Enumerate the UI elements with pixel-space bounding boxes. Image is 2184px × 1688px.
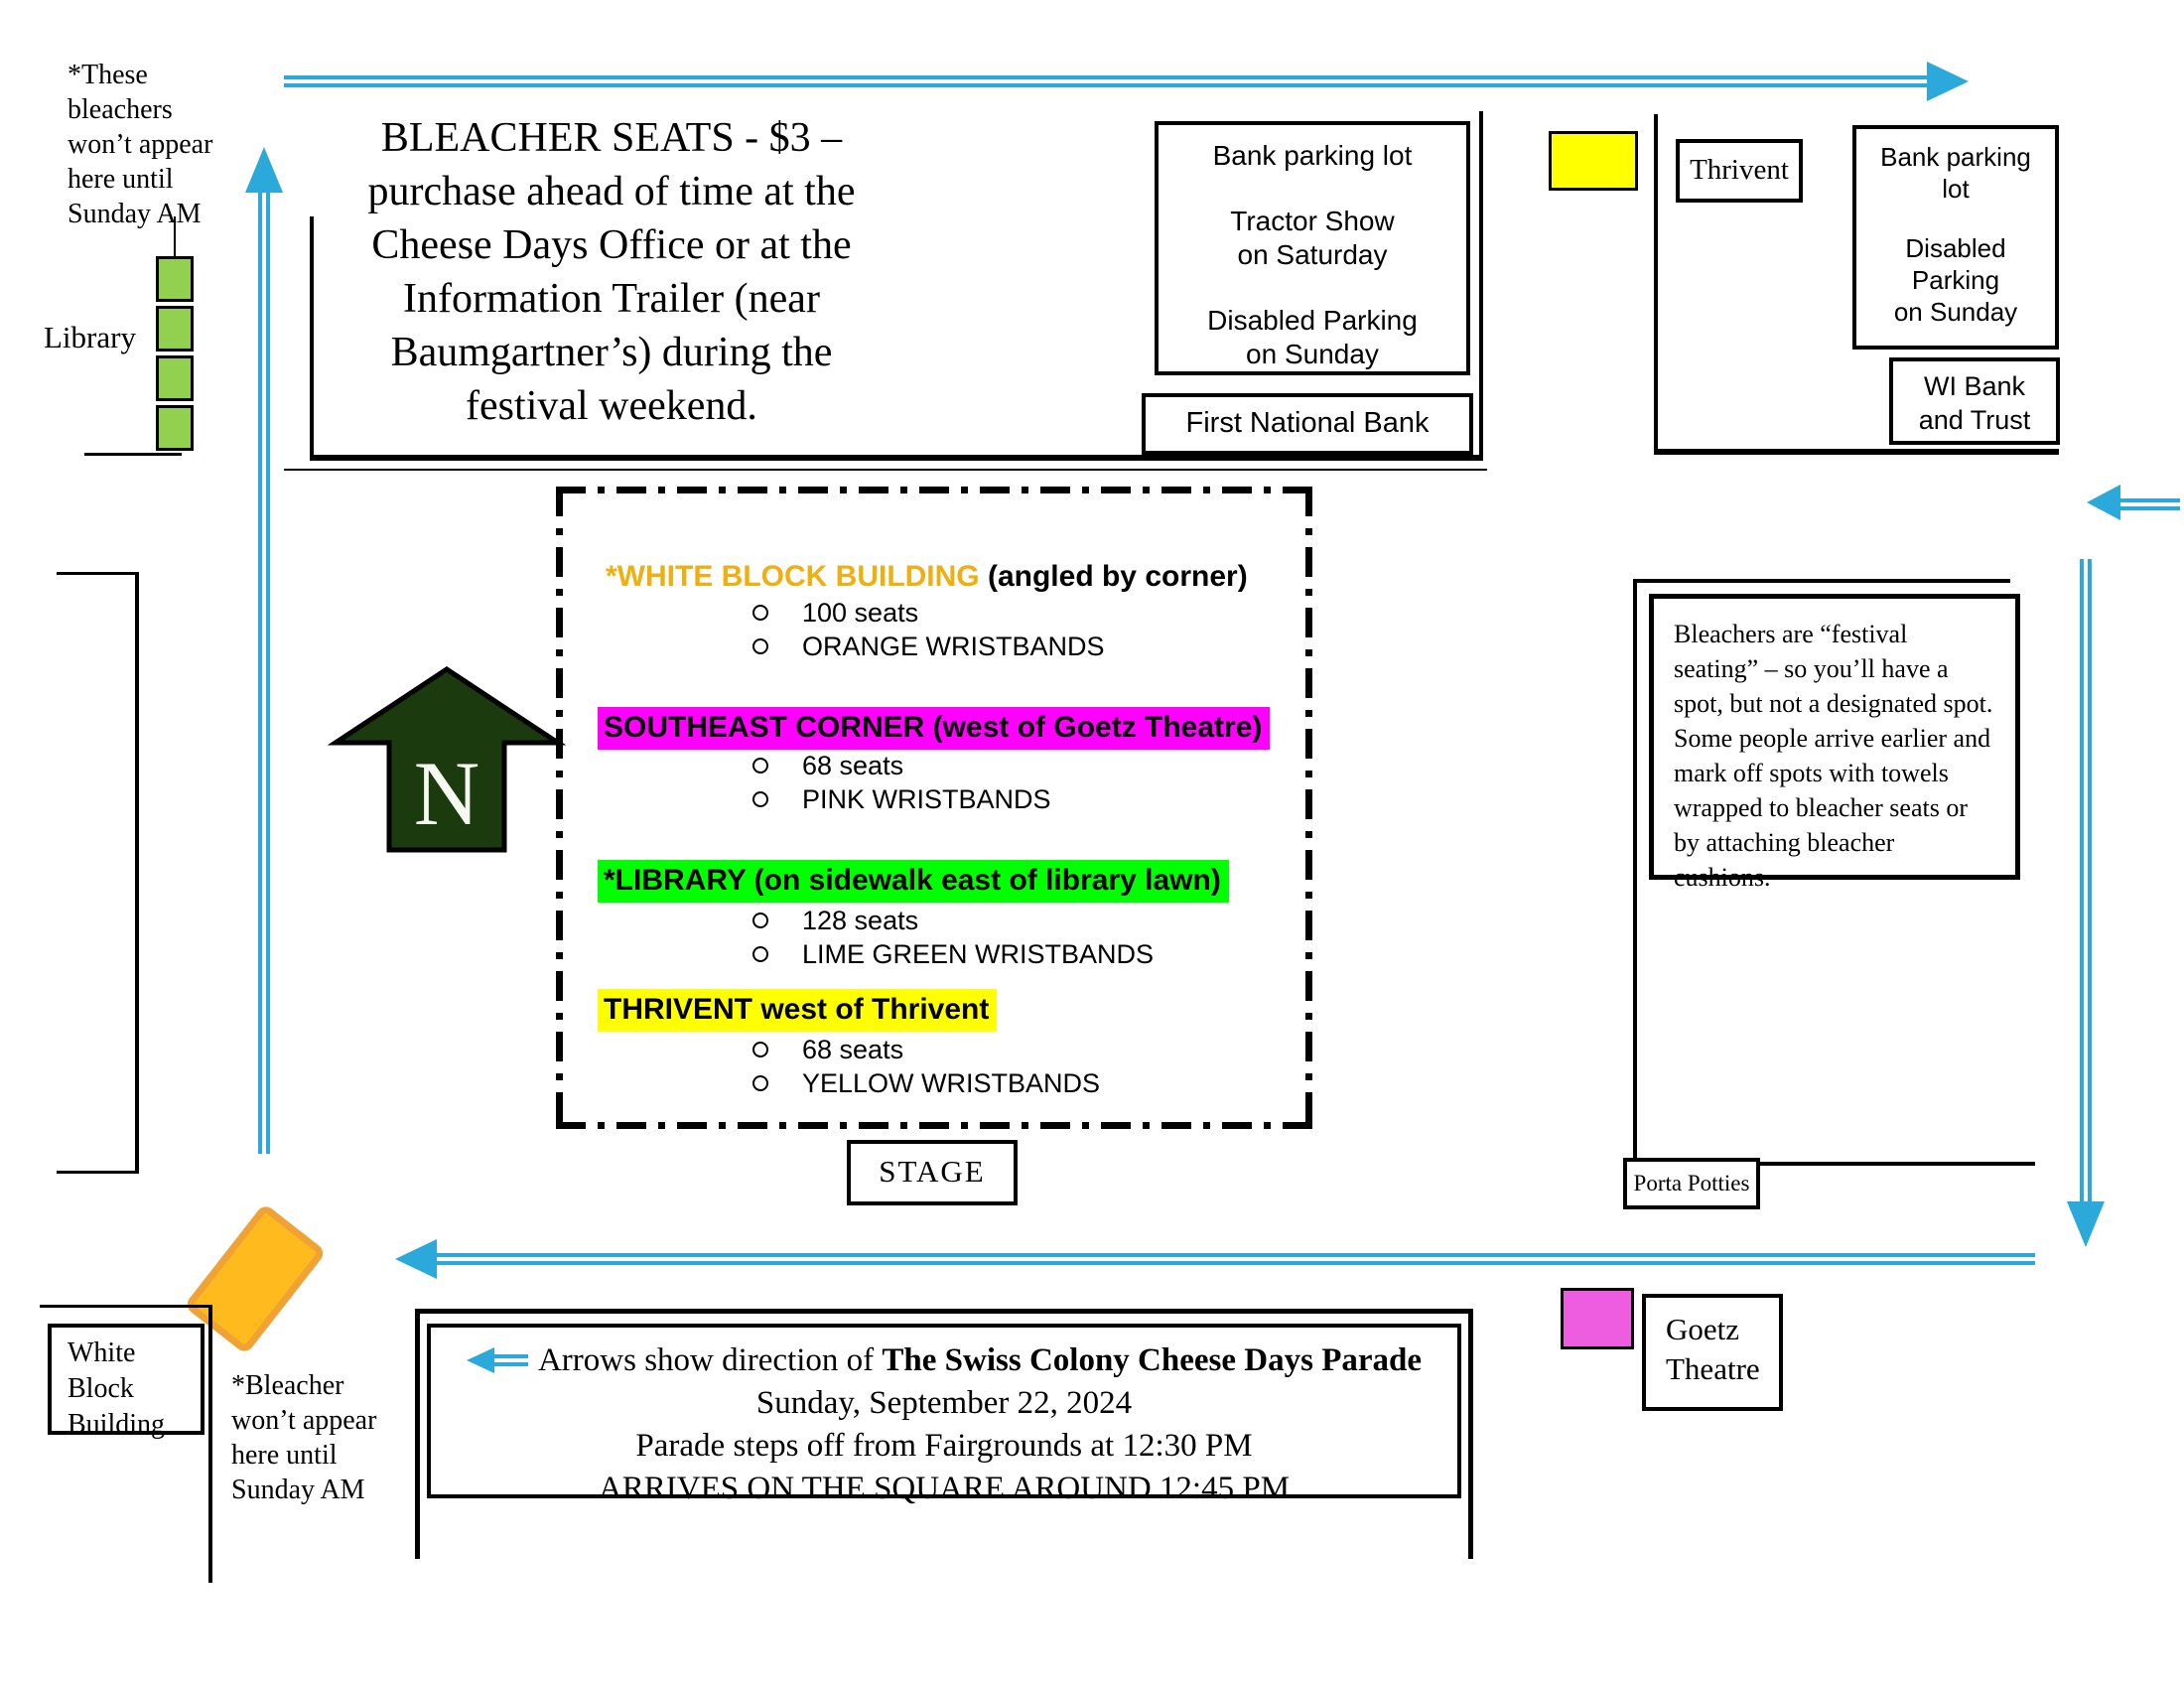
label-line: on Sunday (1856, 296, 2055, 328)
parade-direction-mini-arrow-icon (467, 1347, 528, 1373)
parade-line-2: Sunday, September 22, 2024 (431, 1382, 1457, 1425)
parade-route-arrow-south-head-icon (395, 1239, 437, 1279)
seats-value: 128 seats (802, 906, 918, 935)
northeast-block-west-edge (1654, 114, 1658, 455)
southwest-block-east-edge (208, 1305, 212, 1583)
bank-parking-lot-north: Bank parking lot Tractor Show on Saturda… (1155, 121, 1470, 375)
section-subtitle: (angled by corner) (980, 560, 1248, 593)
legend-section-thrivent-title: THRIVENT west of Thrivent (598, 989, 997, 1032)
legend-border-right (1305, 487, 1312, 1129)
bleacher-note-southwest: *Bleacher won’t appear here until Sunday… (231, 1368, 376, 1507)
southwest-block-top-edge (40, 1305, 212, 1308)
legend-border-bottom (556, 1122, 1312, 1129)
legend-section-white-block-title: *WHITE BLOCK BUILDING (angled by corner) (606, 560, 1248, 594)
note-line: bleachers (68, 92, 212, 127)
label-line: Bank parking (1856, 141, 2055, 173)
legend-seats-southeast: 68 seats (802, 751, 903, 781)
legend-wristband-southeast: PINK WRISTBANDS (802, 784, 1051, 815)
legend-wristband-thrivent: YELLOW WRISTBANDS (802, 1068, 1100, 1099)
bleacher-seats-notice: BLEACHER SEATS - $3 – purchase ahead of … (316, 111, 907, 433)
note-line: here until (231, 1438, 376, 1473)
cheese-days-parade-map: *These bleachers won’t appear here until… (0, 0, 2184, 1688)
thrivent-bleacher-marker (1549, 131, 1638, 191)
note-line: won’t appear (68, 127, 212, 162)
first-national-bank: First National Bank (1142, 393, 1473, 455)
parade-line-3: Parade steps off from Fairgrounds at 12:… (431, 1425, 1457, 1468)
southeast-block-south-edge (1757, 1162, 2035, 1166)
library-bleacher-stem-line (174, 216, 176, 258)
note-line: here until (68, 162, 212, 197)
notice-line: Cheese Days Office or at the (316, 218, 907, 272)
parade-line1-prefix: Arrows show direction of (538, 1342, 882, 1378)
north-block-east-edge (1479, 111, 1483, 459)
bullet-circle-icon (752, 1075, 768, 1091)
bullet-circle-icon (752, 758, 768, 774)
seats-value: 68 seats (802, 1035, 903, 1064)
note-line: Sunday AM (68, 197, 212, 231)
notice-line: Baumgartner’s) during the (316, 326, 907, 379)
label-line: WI Bank (1893, 369, 2056, 403)
legend-border-top (556, 487, 1312, 493)
goetz-theatre: Goetz Theatre (1642, 1294, 1783, 1411)
notice-line: festival weekend. (316, 379, 907, 433)
label-line: on Saturday (1159, 238, 1466, 272)
northeast-block-south-edge (1654, 449, 2059, 455)
southeast-block-west-edge (1633, 579, 1637, 1162)
north-compass-icon: N (328, 663, 566, 856)
parade-route-arrow-west (258, 193, 270, 1154)
parade-line1-title: The Swiss Colony Cheese Days Parade (882, 1342, 1422, 1378)
wristband-value: YELLOW WRISTBANDS (802, 1068, 1100, 1098)
parade-route-arrow-northeast-turn-head-icon (2087, 485, 2120, 520)
note-line: *Bleacher (231, 1368, 376, 1403)
west-block-bottom-edge (57, 1171, 139, 1174)
section-title: *LIBRARY (on sidewalk east of library la… (604, 864, 1221, 897)
parade-route-arrow-south (427, 1253, 2035, 1265)
library-bleacher-block (156, 355, 194, 401)
wristband-value: PINK WRISTBANDS (802, 784, 1051, 814)
parade-info-box: Arrows show direction of The Swiss Colon… (427, 1324, 1461, 1498)
wristband-value: ORANGE WRISTBANDS (802, 632, 1105, 661)
legend-seats-thrivent: 68 seats (802, 1035, 903, 1065)
note-text: Bleachers are “festival seating” – so yo… (1674, 617, 1995, 895)
white-block-bleacher-marker (184, 1202, 327, 1354)
goetz-bleacher-marker (1561, 1288, 1634, 1349)
label-line: First National Bank (1146, 397, 1469, 449)
label-line: Disabled (1856, 232, 2055, 264)
note-line: won’t appear (231, 1403, 376, 1438)
label-line: Block (68, 1371, 201, 1407)
legend-section-southeast-corner-title: SOUTHEAST CORNER (west of Goetz Theatre) (598, 707, 1270, 750)
label-line: Parking (1856, 264, 2055, 296)
library-label: Library (44, 320, 136, 355)
seats-value: 68 seats (802, 751, 903, 780)
notice-line: purchase ahead of time at the (316, 165, 907, 218)
festival-seating-note: Bleachers are “festival seating” – so yo… (1649, 594, 2020, 880)
label-line: STAGE (851, 1144, 1014, 1199)
bleacher-note-northwest: *These bleachers won’t appear here until… (68, 58, 212, 231)
parade-route-arrow-west-head-icon (245, 147, 283, 193)
bullet-circle-icon (752, 791, 768, 807)
bullet-circle-icon (752, 638, 768, 654)
legend-wristband-library: LIME GREEN WRISTBANDS (802, 939, 1154, 970)
library-bleacher-block (156, 405, 194, 451)
white-block-building: White Block Building (48, 1324, 205, 1435)
north-block-south-edge (310, 455, 1483, 461)
section-title: *WHITE BLOCK BUILDING (606, 560, 980, 593)
north-block-curb-line (284, 469, 1487, 471)
parade-line-1: Arrows show direction of The Swiss Colon… (431, 1339, 1457, 1382)
compass-letter: N (414, 743, 479, 844)
wristband-value: LIME GREEN WRISTBANDS (802, 939, 1154, 969)
southeast-block-north-edge (1633, 579, 2010, 583)
library-base-line (84, 453, 182, 456)
legend-section-library-title: *LIBRARY (on sidewalk east of library la… (598, 860, 1229, 903)
library-bleacher-block (156, 306, 194, 352)
label-line: lot (1856, 173, 2055, 205)
label-line: Theatre (1666, 1349, 1779, 1389)
notice-line: BLEACHER SEATS - $3 – (316, 111, 907, 165)
label-line: Goetz (1666, 1310, 1779, 1349)
porta-potties: Porta Potties (1623, 1158, 1760, 1209)
parade-route-arrow-north (284, 75, 1930, 87)
parade-route-arrow-northeast-turn (2116, 498, 2180, 510)
section-title: THRIVENT west of Thrivent (604, 993, 989, 1026)
north-block-west-edge (310, 216, 314, 461)
note-line: Sunday AM (231, 1473, 376, 1507)
west-block-top-edge (57, 572, 139, 575)
label-line: Thrivent (1680, 143, 1799, 197)
west-block-east-edge (135, 572, 139, 1174)
parade-line-4: ARRIVES ON THE SQUARE AROUND 12:45 PM (431, 1468, 1457, 1510)
bullet-circle-icon (752, 605, 768, 621)
label-line: Bank parking lot (1159, 139, 1466, 173)
note-line: *These (68, 58, 212, 92)
bullet-circle-icon (752, 913, 768, 928)
label-line: and Trust (1893, 403, 2056, 437)
label-line: Porta Potties (1627, 1162, 1756, 1205)
bank-parking-lot-east: Bank parking lot Disabled Parking on Sun… (1852, 125, 2059, 350)
section-title: SOUTHEAST CORNER (west of Goetz Theatre) (604, 711, 1262, 744)
label-line: Disabled Parking (1159, 304, 1466, 338)
wi-bank-and-trust: WI Bank and Trust (1889, 357, 2060, 445)
legend-wristband-white-block: ORANGE WRISTBANDS (802, 632, 1105, 662)
library-bleacher-block (156, 256, 194, 302)
bullet-circle-icon (752, 946, 768, 962)
notice-line: Information Trailer (near (316, 272, 907, 326)
legend-seats-white-block: 100 seats (802, 598, 918, 629)
label-line: Building (68, 1407, 201, 1443)
parade-route-arrow-east-head-icon (2067, 1201, 2105, 1247)
label-line: Tractor Show (1159, 205, 1466, 238)
thrivent-building: Thrivent (1676, 139, 1803, 203)
parade-route-arrow-north-head-icon (1927, 62, 1969, 101)
label-line: on Sunday (1159, 338, 1466, 371)
seats-value: 100 seats (802, 598, 918, 628)
stage: STAGE (847, 1140, 1018, 1205)
bullet-circle-icon (752, 1042, 768, 1057)
legend-seats-library: 128 seats (802, 906, 918, 936)
label-line: White (68, 1336, 201, 1371)
parade-route-arrow-east (2080, 559, 2092, 1209)
